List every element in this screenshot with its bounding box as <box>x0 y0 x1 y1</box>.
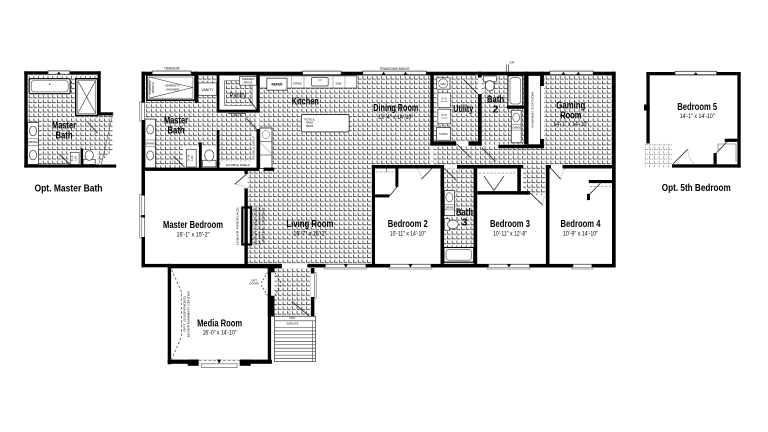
svg-text:10'-9" x 14'-10": 10'-9" x 14'-10" <box>563 231 598 237</box>
svg-text:HEATER, CENTER: HEATER, CENTER <box>261 208 265 244</box>
svg-text:WH: WH <box>440 82 446 86</box>
svg-text:DOUBLE SHELF: DOUBLE SHELF <box>251 136 255 160</box>
svg-text:D/W: D/W <box>336 81 342 85</box>
svg-text:2: 2 <box>493 104 499 116</box>
svg-text:SIDELITE: SIDELITE <box>287 322 299 326</box>
svg-text:5'-0: 5'-0 <box>442 97 448 101</box>
svg-text:DOUBLE SHELF: DOUBLE SHELF <box>226 163 250 167</box>
svg-text:GAMING STATION: GAMING STATION <box>530 92 534 128</box>
svg-text:12'-4" x 14'-10": 12'-4" x 14'-10" <box>378 115 413 121</box>
svg-text:16'-0" x 14'-10": 16'-0" x 14'-10" <box>203 331 237 337</box>
svg-text:Pantry: Pantry <box>230 93 247 100</box>
svg-text:Bedroom 4: Bedroom 4 <box>561 218 601 230</box>
svg-text:10'-11" x 12'-8": 10'-11" x 12'-8" <box>493 231 527 237</box>
svg-text:SHOWER: SHOWER <box>166 87 180 91</box>
svg-text:Bedroom 2: Bedroom 2 <box>388 218 428 230</box>
svg-text:Utility: Utility <box>453 103 473 115</box>
svg-text:Bedroom 5: Bedroom 5 <box>677 101 717 113</box>
svg-text:LIN: LIN <box>74 156 77 161</box>
svg-text:16'-1" x 15'-2": 16'-1" x 15'-2" <box>177 232 210 238</box>
svg-text:Living Room: Living Room <box>286 218 333 230</box>
svg-text:DRWS: DRWS <box>293 81 302 85</box>
svg-text:VANITY: VANITY <box>202 88 215 92</box>
svg-text:TRANSOM: TRANSOM <box>164 66 180 70</box>
svg-text:Bath: Bath <box>56 130 73 142</box>
svg-text:14'-1" x 14'-10": 14'-1" x 14'-10" <box>553 122 588 128</box>
svg-text:3: 3 <box>462 217 468 229</box>
svg-text:Master Bedroom: Master Bedroom <box>163 219 223 231</box>
svg-text:REFER: REFER <box>272 82 284 86</box>
svg-text:MIRROR: MIRROR <box>232 114 243 118</box>
svg-text:DRWS: DRWS <box>446 206 454 209</box>
svg-text:Opt. Master Bath: Opt. Master Bath <box>35 183 103 195</box>
svg-text:ENTERTAINMENT CENTER: ENTERTAINMENT CENTER <box>186 290 190 337</box>
svg-text:OPT.: OPT. <box>290 316 296 320</box>
svg-text:14'-1" x 14'-10": 14'-1" x 14'-10" <box>680 114 715 120</box>
svg-text:FREEZER: FREEZER <box>242 77 254 81</box>
svg-text:DRAWS: DRAWS <box>29 140 38 144</box>
svg-text:Kitchen: Kitchen <box>292 95 319 107</box>
svg-text:Bedroom 3: Bedroom 3 <box>490 218 530 230</box>
svg-text:GFI: GFI <box>509 61 514 65</box>
svg-text:BENCH: BENCH <box>151 82 155 93</box>
svg-text:TRANSOMS ABOVE: TRANSOMS ABOVE <box>380 67 411 71</box>
svg-text:Dining Room: Dining Room <box>373 102 418 114</box>
svg-text:LINEAR FIREPLACE: LINEAR FIREPLACE <box>235 207 239 245</box>
svg-text:DRWS: DRWS <box>512 126 520 129</box>
svg-text:10'-11" x 14'-10": 10'-11" x 14'-10" <box>390 231 426 237</box>
svg-text:Room: Room <box>560 109 581 121</box>
svg-text:DOORS: DOORS <box>250 282 260 286</box>
svg-text:SPACE: SPACE <box>244 80 253 84</box>
svg-text:DRWS: DRWS <box>306 124 314 128</box>
svg-text:19'-7" x 15'-2": 19'-7" x 15'-2" <box>293 231 326 237</box>
svg-text:Bath: Bath <box>168 125 185 137</box>
svg-text:Media Room: Media Room <box>197 318 242 330</box>
svg-text:FURN: FURN <box>439 132 448 136</box>
svg-text:5'-0: 5'-0 <box>442 113 448 117</box>
svg-text:Opt. 5th Bedroom: Opt. 5th Bedroom <box>662 182 731 194</box>
svg-text:LIN: LIN <box>191 155 194 160</box>
svg-text:DRAWS: DRAWS <box>146 142 155 146</box>
